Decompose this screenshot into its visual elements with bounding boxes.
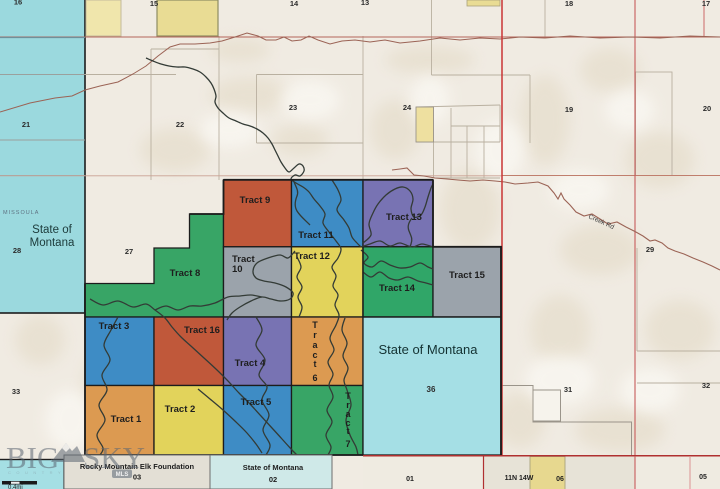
- svg-text:05: 05: [699, 474, 707, 481]
- svg-text:06: 06: [556, 476, 564, 483]
- svg-text:11N 14W: 11N 14W: [505, 475, 534, 482]
- svg-text:0.4mi: 0.4mi: [8, 485, 23, 489]
- svg-text:01: 01: [406, 476, 414, 483]
- svg-text:C O U N T R Y: C O U N T R Y: [8, 470, 63, 475]
- svg-text:State of Montana: State of Montana: [243, 463, 304, 472]
- svg-text:MLS: MLS: [116, 472, 129, 478]
- svg-text:02: 02: [269, 475, 277, 484]
